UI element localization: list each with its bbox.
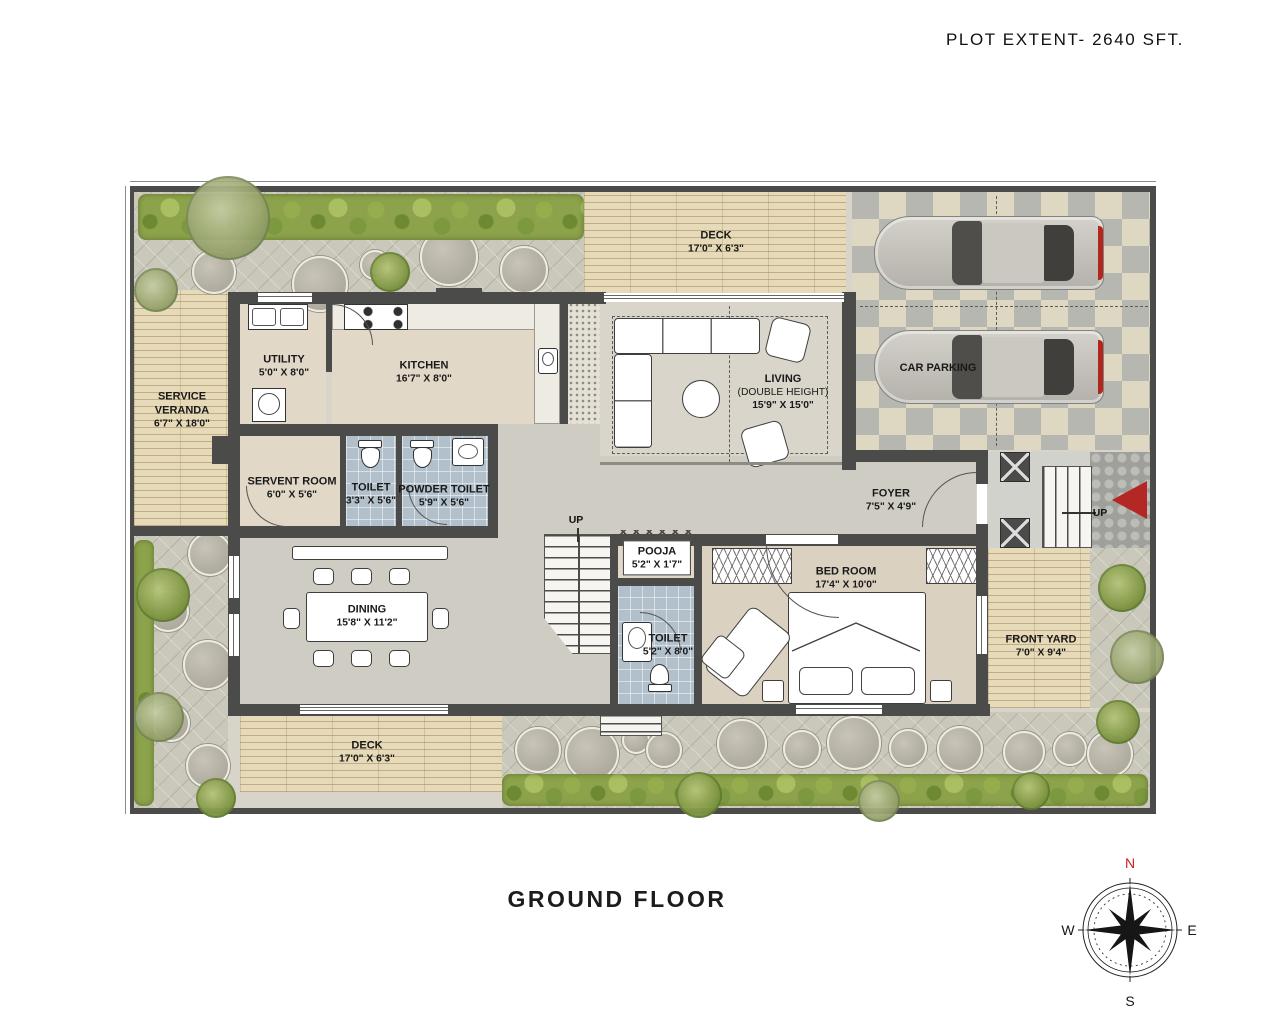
stepping-stone [1053,732,1087,766]
corridor-floor [498,424,600,456]
bedroom-door-opening [766,535,838,544]
stepping-stone [183,640,233,690]
label-living: LIVING (DOUBLE HEIGHT) 15'9" X 15'0" [738,372,829,412]
wall-segment [228,526,498,538]
wardrobe [926,548,978,584]
tree [370,252,410,292]
wall-segment [228,424,498,436]
planter [1000,452,1030,482]
wall-segment [842,292,856,470]
label-deck-top: DECK 17'0" X 6'3" [688,228,744,255]
label-front-yard: FRONT YARD 7'0" X 9'4" [1006,632,1077,659]
coffee-table [682,380,720,418]
veranda-equipment [212,436,230,464]
kitchen-sink [538,348,558,374]
wall-segment [618,578,696,586]
wall-segment [694,534,702,716]
wall-segment [134,526,232,536]
floor-plan-canvas: PLOT EXTENT- 2640 SFT. GROUND FLOOR [0,0,1280,1012]
stepping-stone [1003,731,1045,773]
pillow [861,667,915,695]
powder-basin [452,438,484,466]
label-utility: UTILITY 5'0" X 8'0" [259,352,309,379]
wc-toilet-servant [358,440,382,468]
parking-guide-line [860,306,1148,307]
stair-up-line [577,528,579,542]
page-title: GROUND FLOOR [477,886,757,913]
tree [186,176,270,260]
stepping-stone [500,246,548,294]
dining-chair [389,650,410,667]
dining-chair [313,650,334,667]
dining-chair [351,650,372,667]
sliding-door-living-deck [604,293,844,302]
wc-powder-toilet [410,440,434,468]
stepping-stone [515,727,561,773]
window-bedroom-east [977,596,987,654]
pooja-zigzag [620,530,696,540]
window-bedroom-south [796,705,882,714]
chimney-hood [436,288,482,302]
label-pooja: POOJA 5'2" X 1'7" [623,540,691,575]
window-kitchen [258,293,312,302]
utility-sink [248,304,308,330]
stepping-stone [188,532,232,576]
dining-chair [283,608,300,629]
tree [136,568,190,622]
stair-rail [578,535,580,653]
console-table [292,546,448,560]
tree [196,778,236,818]
entry-up-line [1062,512,1096,514]
wall-segment [610,534,618,716]
stepping-stone [646,732,682,768]
tree [1110,630,1164,684]
window-dining-2 [229,614,239,656]
stepping-stone [827,716,881,770]
tree [134,692,184,742]
property-line-left [125,186,126,814]
stairs-up-label: UP [569,514,584,526]
dining-chair [313,568,334,585]
label-deck-bottom: DECK 17'0" X 6'3" [339,738,395,765]
compass-rose: N S W E [1058,846,1202,1012]
label-service-veranda: SERVICE VERANDA 6'7" X 18'0" [138,389,226,430]
planter [1000,518,1030,548]
stepping-stone [783,730,821,768]
tree [1098,564,1146,612]
compass-north-label: N [1125,855,1135,871]
sofa-side [614,354,652,448]
tree [1012,772,1050,810]
stepping-stone [889,729,927,767]
sofa-long [614,318,760,354]
wc-toilet-bedroom [648,664,672,692]
label-servent-room: SERVENT ROOM 6'0" X 5'6" [247,474,336,501]
compass-south-label: S [1125,993,1134,1009]
hedge-bottom [502,774,1148,806]
wall-segment [560,292,568,424]
label-kitchen: KITCHEN 16'7" X 8'0" [396,358,452,385]
dining-chair [432,608,449,629]
corridor-floor [498,456,846,534]
wall-segment [396,436,402,526]
bedside-table [762,680,784,702]
label-toilet-servant: TOILET 3'3" X 5'6" [346,480,396,507]
floor-step-line [600,462,844,465]
tree [858,780,900,822]
compass-east-label: E [1187,922,1196,938]
compass-west-label: W [1061,922,1075,938]
property-line-top [130,181,1156,182]
main-door-opening [977,484,987,524]
tree [1096,700,1140,744]
garden-exit-steps [600,714,662,736]
sliding-door-dining-deck [300,705,448,714]
wall-segment [228,292,240,538]
entry-up-label: UP [1093,507,1108,519]
stepping-stone [717,719,767,769]
stepping-stone [937,726,983,772]
label-car-parking: CAR PARKING [900,361,977,375]
label-bedroom: BED ROOM 17'4" X 10'0" [815,564,877,591]
wall-segment [488,424,498,538]
car [874,216,1104,290]
label-foyer: FOYER 7'5" X 4'9" [866,486,916,513]
tree [676,772,722,818]
dining-chair [351,568,372,585]
label-toilet-bedroom: TOILET 5'2" X 8'0" [643,631,693,658]
bedside-table [930,680,952,702]
entry-steps [1042,466,1092,548]
pillow [799,667,853,695]
tree [134,268,178,312]
plot-extent-text: PLOT EXTENT- 2640 SFT. [946,30,1184,50]
label-dining: DINING 15'8" X 11'2" [336,602,397,629]
washing-machine [252,388,286,422]
blanket-fold [789,607,923,657]
wall-segment [846,450,988,462]
dining-chair [389,568,410,585]
window-dining-1 [229,556,239,598]
front-yard-area [988,548,1090,708]
label-powder-toilet: POWDER TOILET 5'9" X 5'6" [398,482,489,509]
entry-direction-arrow [1112,481,1147,519]
